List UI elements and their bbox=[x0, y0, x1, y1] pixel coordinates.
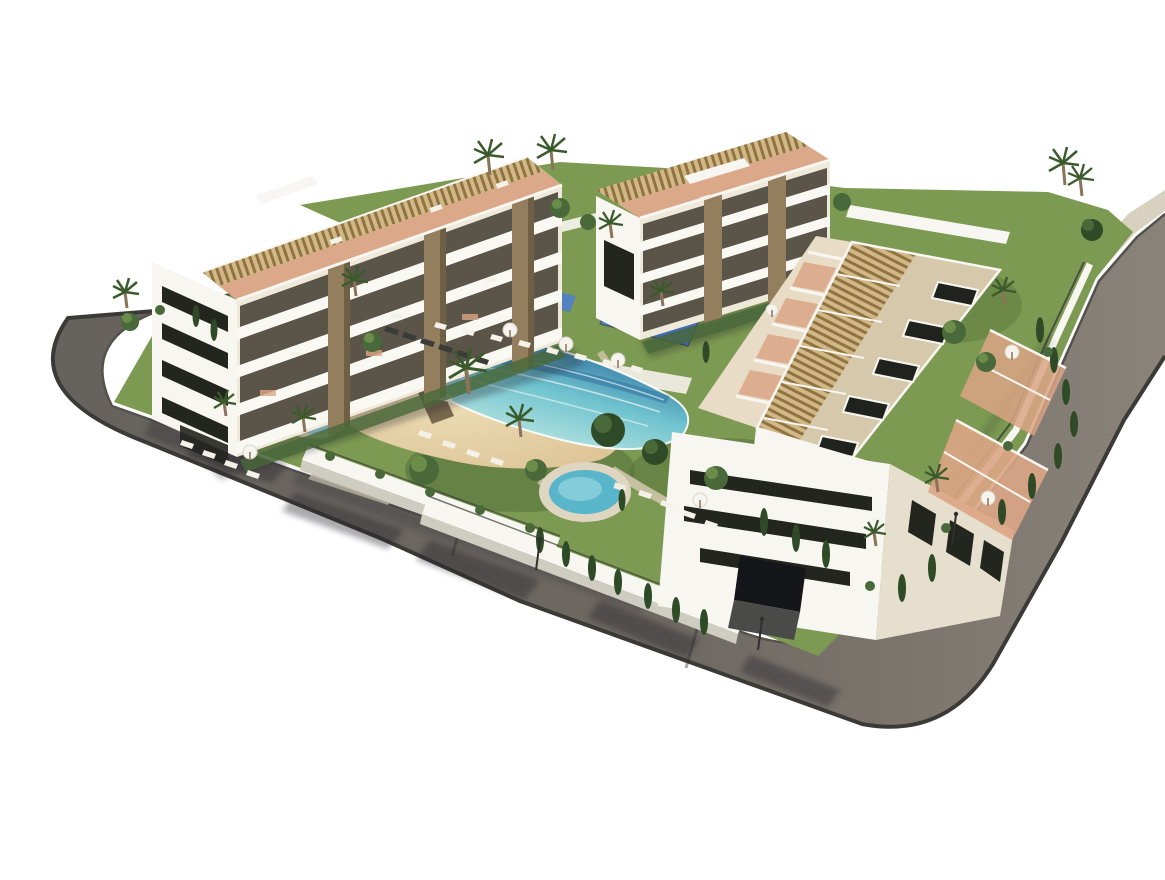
round-tree bbox=[976, 352, 996, 372]
round-tree bbox=[362, 332, 382, 352]
pillar-shade bbox=[528, 196, 534, 367]
round-tree bbox=[833, 193, 851, 211]
balcony-furniture bbox=[260, 390, 276, 396]
architectural-render: Aerial 3D render of a modern residential… bbox=[0, 0, 1165, 880]
roof-canopy-frame bbox=[256, 176, 318, 204]
round-tree bbox=[591, 413, 625, 447]
round-tree bbox=[580, 214, 596, 230]
balcony-furniture bbox=[462, 314, 478, 320]
round-tree bbox=[525, 459, 547, 481]
round-tree bbox=[409, 455, 439, 485]
pillar-shade bbox=[440, 227, 446, 398]
round-tree bbox=[550, 198, 570, 218]
palm-tree bbox=[1049, 147, 1079, 185]
round-tree bbox=[942, 320, 966, 344]
stone-pillar bbox=[704, 194, 722, 326]
spa-pool bbox=[539, 462, 631, 522]
balcony-lounger bbox=[290, 352, 300, 356]
render-page: Aerial 3D render of a modern residential… bbox=[0, 0, 1165, 880]
round-tree bbox=[121, 313, 139, 331]
palm-tree bbox=[1068, 164, 1094, 196]
round-tree bbox=[1081, 219, 1103, 241]
palm-tree bbox=[113, 278, 139, 308]
balcony-lounger bbox=[486, 278, 496, 282]
round-tree bbox=[704, 466, 728, 490]
balcony-lounger bbox=[392, 314, 402, 318]
round-tree bbox=[642, 439, 668, 465]
spa-highlight bbox=[558, 477, 602, 501]
